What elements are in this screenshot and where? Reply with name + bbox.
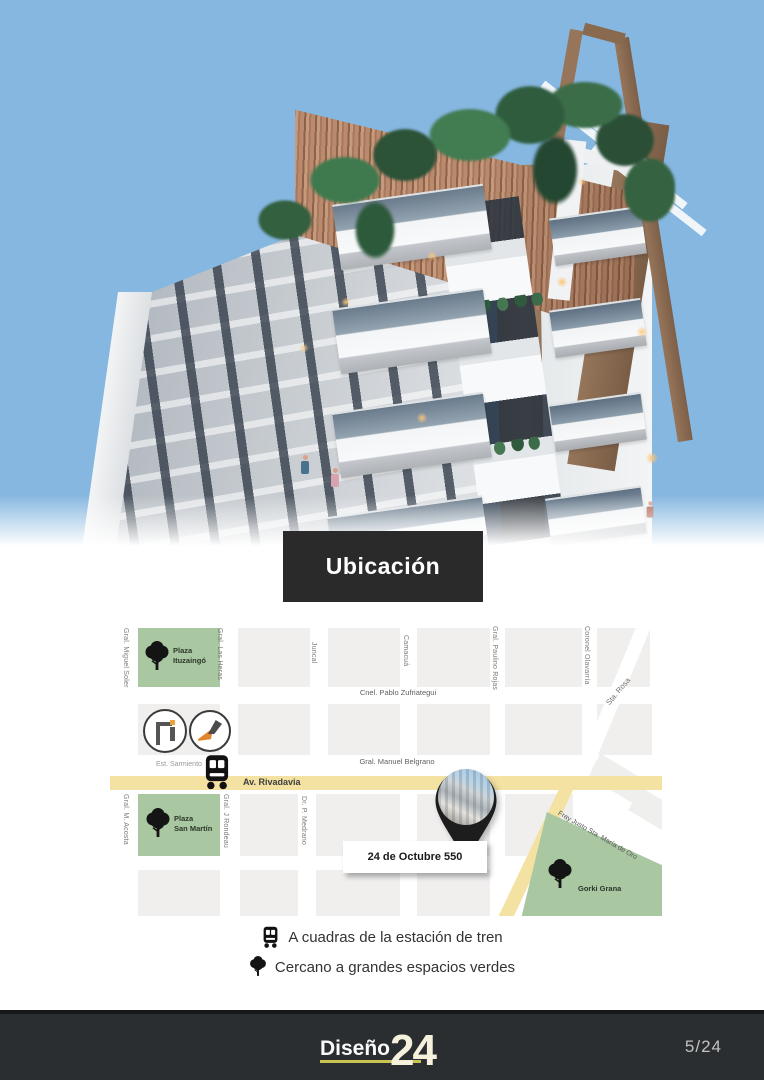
tree-icon (547, 859, 573, 891)
city-block (238, 704, 310, 755)
logo-glyph-dot (170, 720, 175, 725)
street-label: Juncal (310, 642, 317, 663)
person-silhouette (330, 468, 340, 487)
tree-icon (249, 956, 267, 978)
park-label: Gorki Grana (578, 884, 621, 894)
location-map: Plaza Ituzaingó Plaza San Martín (110, 618, 662, 916)
feature-green-spaces: Cercano a grandes espacios verdes (249, 956, 515, 978)
ceiling-lights (0, 0, 764, 552)
feature-train: A cuadras de la estación de tren (261, 926, 502, 949)
person-body (331, 474, 339, 487)
train-icon (261, 926, 280, 949)
station-label: Est. Sarmiento (156, 761, 202, 768)
brand-number: 24 (390, 1033, 435, 1069)
city-block (240, 794, 298, 856)
person-body (301, 461, 309, 474)
street-label: Gral. J Rondeau (222, 794, 229, 848)
street-av-rivadavia (110, 776, 662, 790)
city-block (417, 704, 490, 755)
person-head (333, 468, 338, 473)
logo-swoosh-gray (208, 720, 222, 734)
address-label: 24 de Octubre 550 (343, 841, 487, 873)
location-features: A cuadras de la estación de tren Cercano… (0, 926, 764, 978)
city-block (417, 628, 490, 687)
section-title: Ubicación (326, 553, 440, 580)
section-title-banner: Ubicación (283, 531, 483, 602)
park-plaza-ituzaingo: Plaza Ituzaingó (138, 628, 220, 687)
street-label: Gral. Miguel Soler (122, 628, 129, 688)
city-block (417, 870, 490, 916)
page-indicator: 5/24 (685, 1037, 722, 1057)
street-label: Gral. Paulino Rojas (491, 626, 498, 690)
feature-text: Cercano a grandes espacios verdes (275, 959, 515, 976)
city-block (238, 628, 310, 687)
brand-logo: Diseño 24 (320, 1020, 435, 1072)
park-plaza-san-martin: Plaza San Martín (138, 794, 220, 856)
logo-glyph (170, 727, 175, 741)
map-pin-photo (438, 769, 494, 825)
footer-bar: Diseño 24 5/24 (0, 1010, 764, 1080)
city-block (316, 870, 400, 916)
person-head (303, 455, 308, 460)
brand-word: Diseño (320, 1037, 390, 1061)
city-block (138, 870, 220, 916)
feature-text: A cuadras de la estación de tren (288, 929, 502, 946)
park-label: Plaza San Martín (174, 814, 212, 834)
building-render-photo (0, 0, 764, 552)
street-label: Gral. Las Heras (216, 628, 223, 680)
street-label: Coronel Olavarría (583, 626, 590, 685)
street-label: Cnel. Pablo Zufriategui (323, 688, 473, 697)
city-block (505, 628, 582, 687)
tree-icon (145, 808, 171, 840)
person-silhouette (300, 455, 310, 474)
street-label: Camacuá (402, 635, 409, 666)
train-icon (202, 754, 232, 791)
brand-logo-1 (143, 709, 187, 753)
tree-icon (144, 641, 170, 673)
city-block (240, 870, 298, 916)
city-block (328, 628, 400, 687)
park-label: Plaza Ituzaingó (173, 646, 206, 666)
street-label-av-rivadavia: Av. Rivadavia (243, 777, 301, 787)
street-label: Gral. M. Acosta (122, 794, 129, 845)
city-block (505, 704, 582, 755)
city-block (328, 704, 400, 755)
brand-logo-2 (189, 710, 231, 752)
street-label: Dr. P. Medrano (300, 796, 307, 845)
